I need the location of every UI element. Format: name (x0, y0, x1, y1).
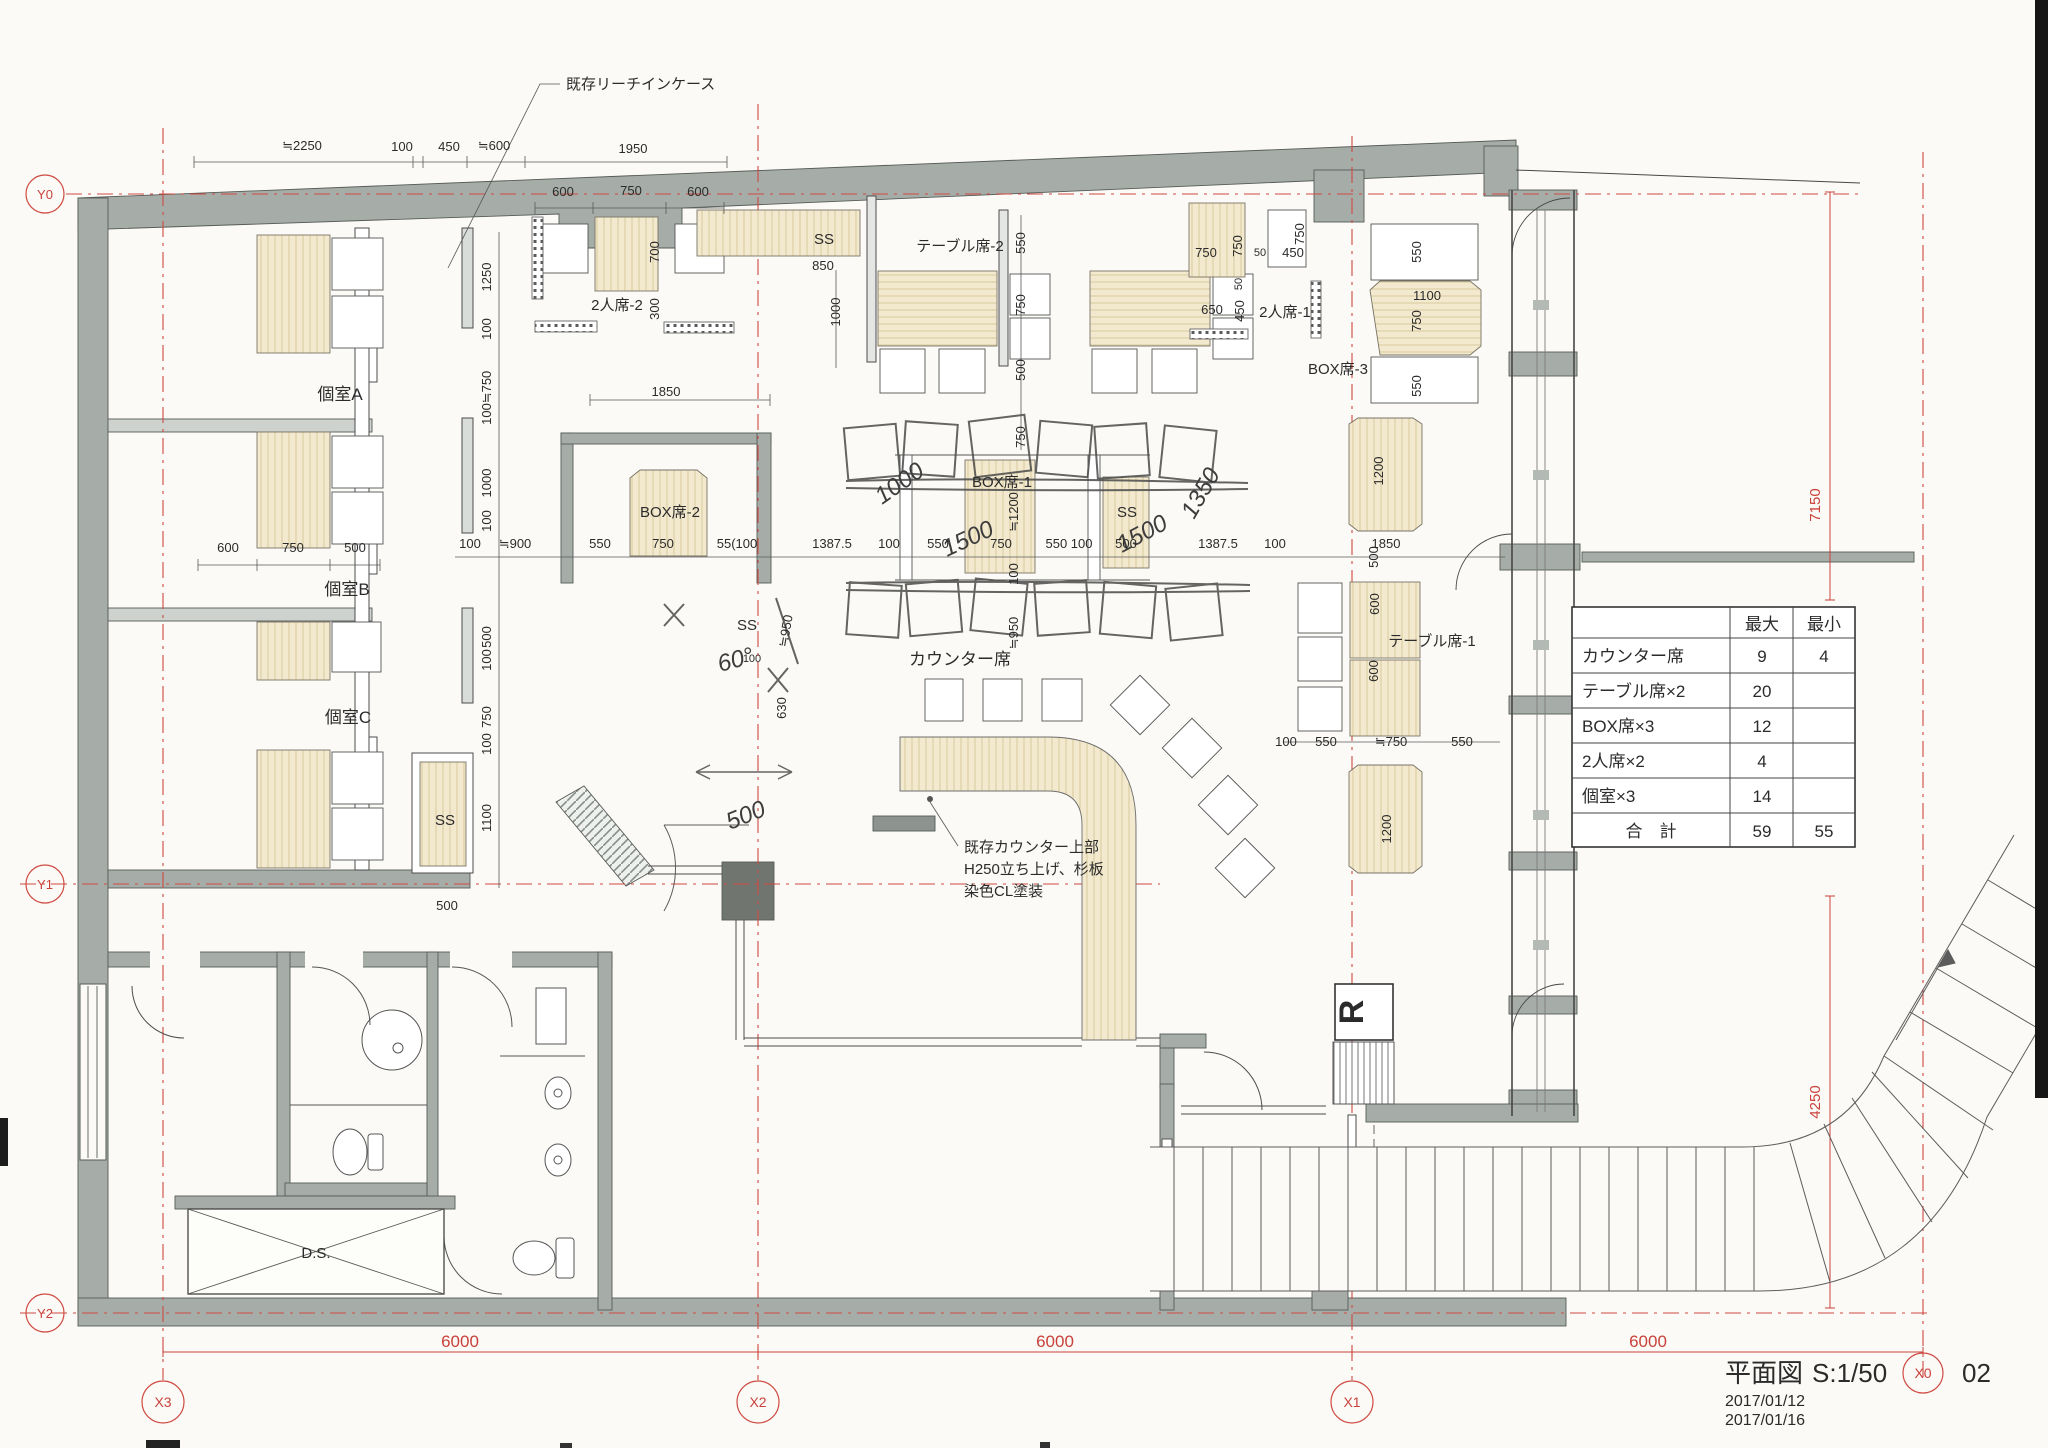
room-private-a: 個室A (317, 385, 363, 404)
mid-dimensions: 100 ≒900 550 750 55(100 1387.5 100 550 7… (459, 536, 1400, 551)
row-max: 12 (1753, 717, 1772, 736)
stairs (1150, 835, 2048, 1291)
grid-x2: X2 (749, 1394, 766, 1410)
row-max: 4 (1757, 752, 1766, 771)
dim-text: 500 (1115, 536, 1137, 551)
dim-text: 1200 (1379, 815, 1394, 844)
dim-text: ≒600 (478, 138, 511, 153)
dim-text: 550 100 (1046, 536, 1093, 551)
grid-x0: X0 (1914, 1365, 1931, 1381)
dim-text: 100 (479, 510, 494, 532)
dim-text: 550 (1409, 241, 1424, 263)
dim-text: 500 (436, 898, 458, 913)
dim-text: 650 (1201, 302, 1223, 317)
dim-text: 50 (1254, 247, 1266, 259)
dim-6000-b: 6000 (1036, 1332, 1074, 1351)
dim-text: 550 (1315, 734, 1337, 749)
dim-text: 600 (687, 184, 709, 199)
dim-text: 1100 (1413, 288, 1441, 303)
dim-text: 100 (479, 318, 494, 340)
drawing-date-1: 2017/01/12 (1725, 1393, 1805, 1410)
dim-text: 600 (217, 540, 239, 555)
drawing-date-2: 2017/01/16 (1725, 1412, 1805, 1429)
grid-x3: X3 (154, 1394, 171, 1410)
row-max: 59 (1753, 822, 1772, 841)
dim-text: 1200 (1371, 457, 1386, 486)
wall-openings (80, 951, 512, 1160)
floor-plan-svg: 6000 6000 6000 7150 4250 Y0 Y1 Y2 X3 X2 … (0, 0, 2048, 1448)
ss-left: SS (435, 812, 455, 829)
dim-text: 100 (391, 139, 413, 154)
dim-text: 600 (552, 184, 574, 199)
dim-text: 750 (479, 706, 494, 728)
room-private-b: 個室B (324, 580, 369, 599)
dim-text: 750 (1409, 310, 1424, 332)
dim-7150: 7150 (1807, 488, 1824, 521)
dim-text: ≒950 (1006, 617, 1021, 650)
row-min: 55 (1815, 822, 1834, 841)
dim-text: 1387.5 (812, 536, 852, 551)
row-label: 個室×3 (1582, 787, 1635, 806)
dim-text: 750 (1195, 245, 1217, 260)
row-max: 9 (1757, 647, 1766, 666)
dim-text: 100 (878, 536, 900, 551)
dim-text: 1000 (479, 469, 494, 498)
dim-text: 450 (1282, 245, 1304, 260)
room-table2: テーブル席-2 (916, 237, 1003, 255)
dim-text: 100 (479, 733, 494, 755)
dim-text: 850 (812, 258, 834, 273)
note-reach-in-case: 既存リーチインケース (566, 76, 715, 93)
title-block: 平面図 S:1/50 02 2017/01/12 2017/01/16 (1725, 1358, 1991, 1429)
grid-y2: Y2 (37, 1306, 53, 1321)
dim-text: ≒750 (1375, 734, 1408, 749)
dim-text: 100 (1275, 734, 1297, 749)
dim-text: 1100 (479, 804, 494, 832)
room-pair1: 2人席-1 (1259, 304, 1311, 321)
row-label: BOX席×3 (1582, 717, 1654, 736)
dim-text: 450 (438, 139, 460, 154)
dim-text: 1250 (479, 263, 494, 292)
dim-text: 630 (774, 697, 789, 719)
dim-6000-a: 6000 (441, 1332, 479, 1351)
scanned-floor-plan-page: 6000 6000 6000 7150 4250 Y0 Y1 Y2 X3 X2 … (0, 0, 2048, 1448)
grid-x1: X1 (1343, 1394, 1360, 1410)
dim-text: 600 (1366, 660, 1381, 682)
room-box2: BOX席-2 (640, 504, 700, 521)
row-label: 合 計 (1626, 822, 1677, 841)
dim-text: 100 (1006, 563, 1021, 585)
th-max: 最大 (1745, 615, 1779, 634)
dim-text: ≒1200 (1006, 492, 1021, 532)
room-box3: BOX席-3 (1308, 361, 1368, 378)
dim-4250: 4250 (1807, 1085, 1824, 1118)
dim-text: ≒2250 (282, 138, 322, 153)
dim-text: 750 (1230, 235, 1245, 257)
dim-text: 550 (589, 536, 611, 551)
dim-text: 550 (1409, 375, 1424, 397)
row-label: カウンター席 (1582, 647, 1684, 666)
dim-text: 500 (1366, 546, 1381, 568)
th-min: 最小 (1807, 615, 1841, 634)
r-mark: R (1333, 1000, 1371, 1025)
ss-mid: SS (737, 617, 757, 634)
dim-text: 750 (1013, 426, 1028, 448)
dim-text: 550 (1013, 232, 1028, 254)
dim-text: 600 (1367, 593, 1382, 615)
row-label: テーブル席×2 (1582, 681, 1685, 701)
row-max: 20 (1753, 682, 1772, 701)
dim-text: 1000 (828, 298, 843, 327)
dim-text: 700 (647, 241, 662, 263)
ss-top: SS (814, 231, 834, 248)
dim-text: ≒950 (775, 614, 795, 649)
dim-text: ≒750 (479, 371, 494, 404)
dim-text: 750 (620, 183, 642, 198)
dim-text: 500 (344, 540, 366, 555)
ss-box1: SS (1117, 504, 1137, 521)
dim-text: 500 (1013, 359, 1028, 381)
hw-1350: 1350 (1176, 463, 1226, 523)
note-counter-2: H250立ち上げ、杉板 (964, 860, 1104, 878)
room-private-c: 個室C (325, 708, 371, 727)
grid-y1: Y1 (37, 877, 53, 892)
dim-6000-c: 6000 (1629, 1332, 1667, 1351)
grid-y0: Y0 (37, 187, 53, 202)
room-box1: BOX席-1 (972, 474, 1032, 491)
dim-text: 100 (743, 653, 761, 665)
dim-text: 550 (1451, 734, 1473, 749)
row-max: 14 (1753, 787, 1772, 806)
dim-text: 750 (1292, 223, 1307, 245)
dim-text: 750 (1013, 294, 1028, 316)
dim-text: 500 (479, 626, 494, 648)
dim-text: ≒900 (499, 536, 532, 551)
room-counter: カウンター席 (909, 650, 1011, 669)
capacity-table: 最大 最小 カウンター席 9 4 テーブル席×2 20 BOX席×3 12 2人… (1572, 607, 1855, 847)
dim-text: 1850 (652, 384, 681, 399)
dim-text: 300 (647, 298, 662, 320)
ds-label: D.S. (301, 1245, 330, 1262)
dim-text: 100 (459, 536, 481, 551)
sheet-number: 02 (1962, 1358, 1991, 1388)
dim-text: 550 (927, 536, 949, 551)
dim-text: 50 (1233, 278, 1245, 290)
dim-text: 55(100 (717, 536, 757, 551)
drawing-title: 平面図 (1725, 1358, 1803, 1388)
row-min: 4 (1819, 647, 1828, 666)
dim-text: 1387.5 (1198, 536, 1238, 551)
dim-text: 100 (479, 649, 494, 671)
dim-text: 750 (990, 536, 1012, 551)
drawing-scale: S:1/50 (1812, 1358, 1887, 1388)
dim-text: 450 (1232, 300, 1247, 322)
dim-text: 750 (652, 536, 674, 551)
duct-space: D.S. (188, 1209, 444, 1294)
note-counter-3: 染色CL塗装 (964, 882, 1043, 900)
note-counter-1: 既存カウンター上部 (964, 839, 1099, 856)
room-pair2: 2人席-2 (591, 297, 643, 314)
dim-text: 100 (479, 403, 494, 425)
hw-500: 500 (722, 795, 770, 835)
dim-text: 750 (282, 540, 304, 555)
dim-text: 100 (1264, 536, 1286, 551)
dim-text: 1950 (619, 141, 648, 156)
row-label: 2人席×2 (1582, 752, 1645, 771)
hand-sketch (664, 415, 1250, 779)
room-table1: テーブル席-1 (1388, 632, 1475, 650)
